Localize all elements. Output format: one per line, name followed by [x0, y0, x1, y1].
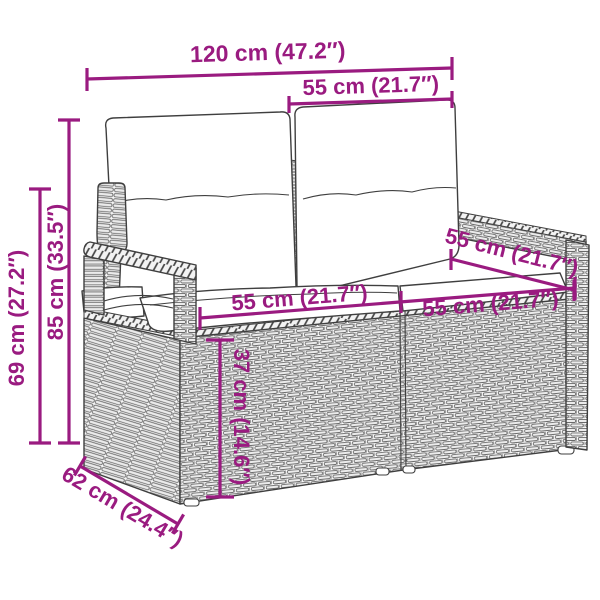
back-cushion-left	[106, 112, 296, 312]
left-armrest-upright	[84, 256, 104, 315]
dim-back-section-width-label: 55 cm (21.7″)	[302, 71, 439, 100]
dim-width-total-label: 120 cm (47.2″)	[190, 37, 346, 68]
foot	[184, 499, 199, 506]
dim-seat-height-label: 37 cm (14.6″)	[229, 349, 254, 486]
foot	[376, 468, 389, 475]
diagram-canvas: 120 cm (47.2″) 55 cm (21.7″) 85 cm (33.5…	[0, 0, 600, 600]
dim-armrest-height-label: 69 cm (27.2″)	[4, 250, 29, 387]
dim-height-total: 85 cm (33.5″)	[43, 120, 80, 443]
dim-height-total-label: 85 cm (33.5″)	[43, 204, 68, 341]
foot	[403, 466, 415, 473]
back-cushions	[106, 100, 459, 312]
product-dimension-diagram: 120 cm (47.2″) 55 cm (21.7″) 85 cm (33.5…	[0, 0, 600, 600]
back-cushion-right	[295, 100, 459, 294]
